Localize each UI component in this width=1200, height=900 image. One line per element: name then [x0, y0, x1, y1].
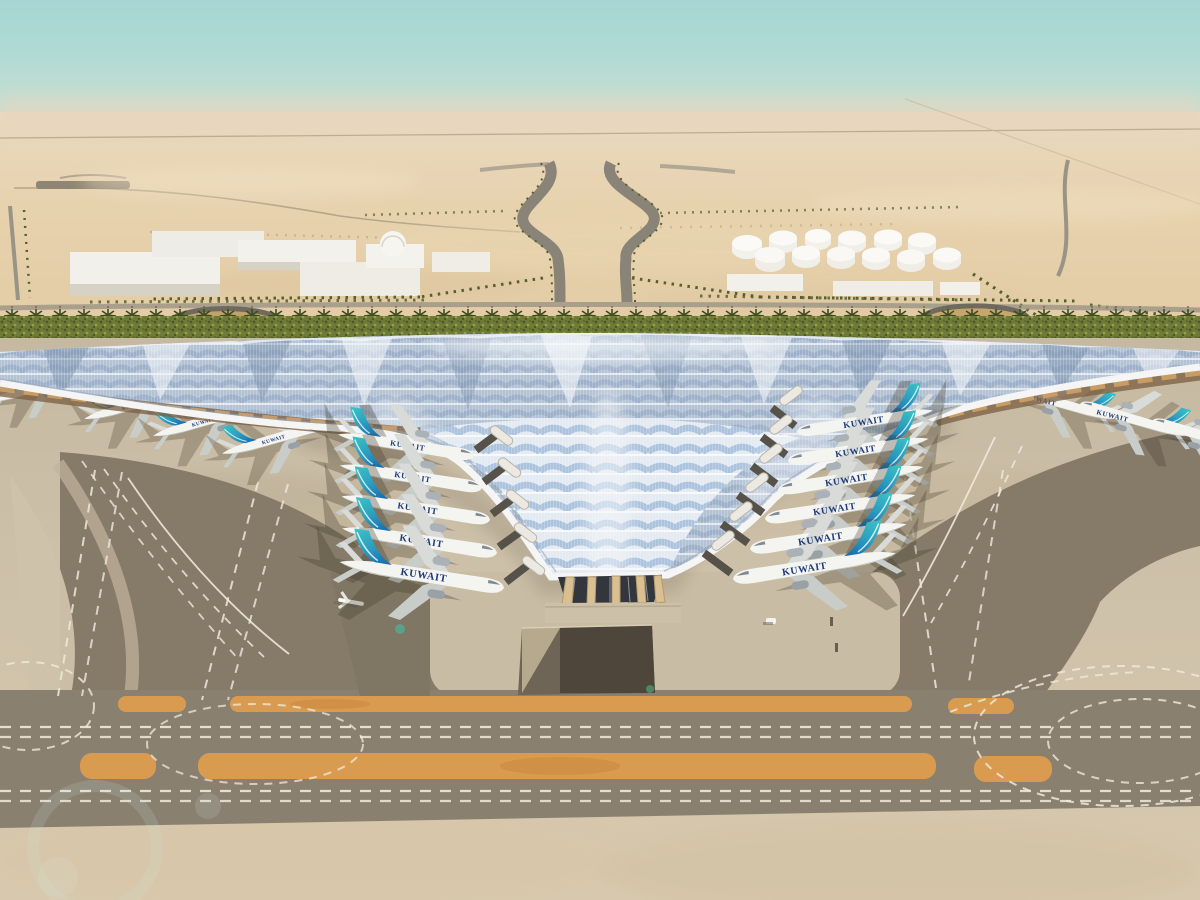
scene-svg: KUWAIT KUWAIT KUWAIT KUWAIT KUWAIT [0, 0, 1200, 900]
aerial-rendering: KUWAIT KUWAIT KUWAIT KUWAIT KUWAIT [0, 0, 1200, 900]
post [830, 617, 833, 626]
terminal-tip [545, 575, 681, 623]
sand-patch [810, 187, 1200, 223]
horizon-haze [0, 96, 1200, 142]
warehouse [432, 252, 490, 272]
warehouse-face [70, 284, 220, 296]
sand-patch [80, 166, 420, 198]
tank-farm-shed [727, 274, 803, 291]
tip-step [545, 606, 681, 607]
tank-farm-shed [833, 281, 933, 296]
car-shadow [763, 622, 773, 625]
dome [380, 231, 406, 257]
post [835, 643, 838, 652]
tank-farm-shed [940, 282, 980, 295]
sunken-ramp [518, 625, 655, 695]
